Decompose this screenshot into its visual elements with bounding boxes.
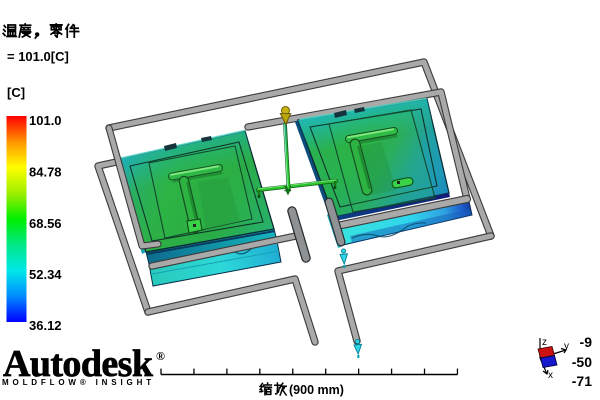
svg-text:-71: -71 (572, 373, 592, 389)
svg-text:z: z (542, 337, 547, 348)
svg-text:®: ® (156, 349, 165, 363)
svg-text:(900 mm): (900 mm) (289, 383, 344, 397)
svg-text:36.12: 36.12 (29, 318, 62, 333)
svg-text:y: y (564, 341, 569, 352)
svg-text:MOLDFLOW® INSIGHT: MOLDFLOW® INSIGHT (2, 378, 155, 387)
svg-text:101.0: 101.0 (29, 113, 62, 128)
svg-text:x: x (548, 370, 553, 381)
svg-text:= 101.0[C]: = 101.0[C] (7, 49, 69, 64)
svg-text:[C]: [C] (7, 85, 25, 100)
svg-text:52.34: 52.34 (29, 267, 62, 282)
svg-text:68.56: 68.56 (29, 216, 62, 231)
svg-text:84.78: 84.78 (29, 165, 62, 180)
svg-text:-50: -50 (572, 354, 592, 370)
svg-text:-9: -9 (580, 334, 593, 350)
